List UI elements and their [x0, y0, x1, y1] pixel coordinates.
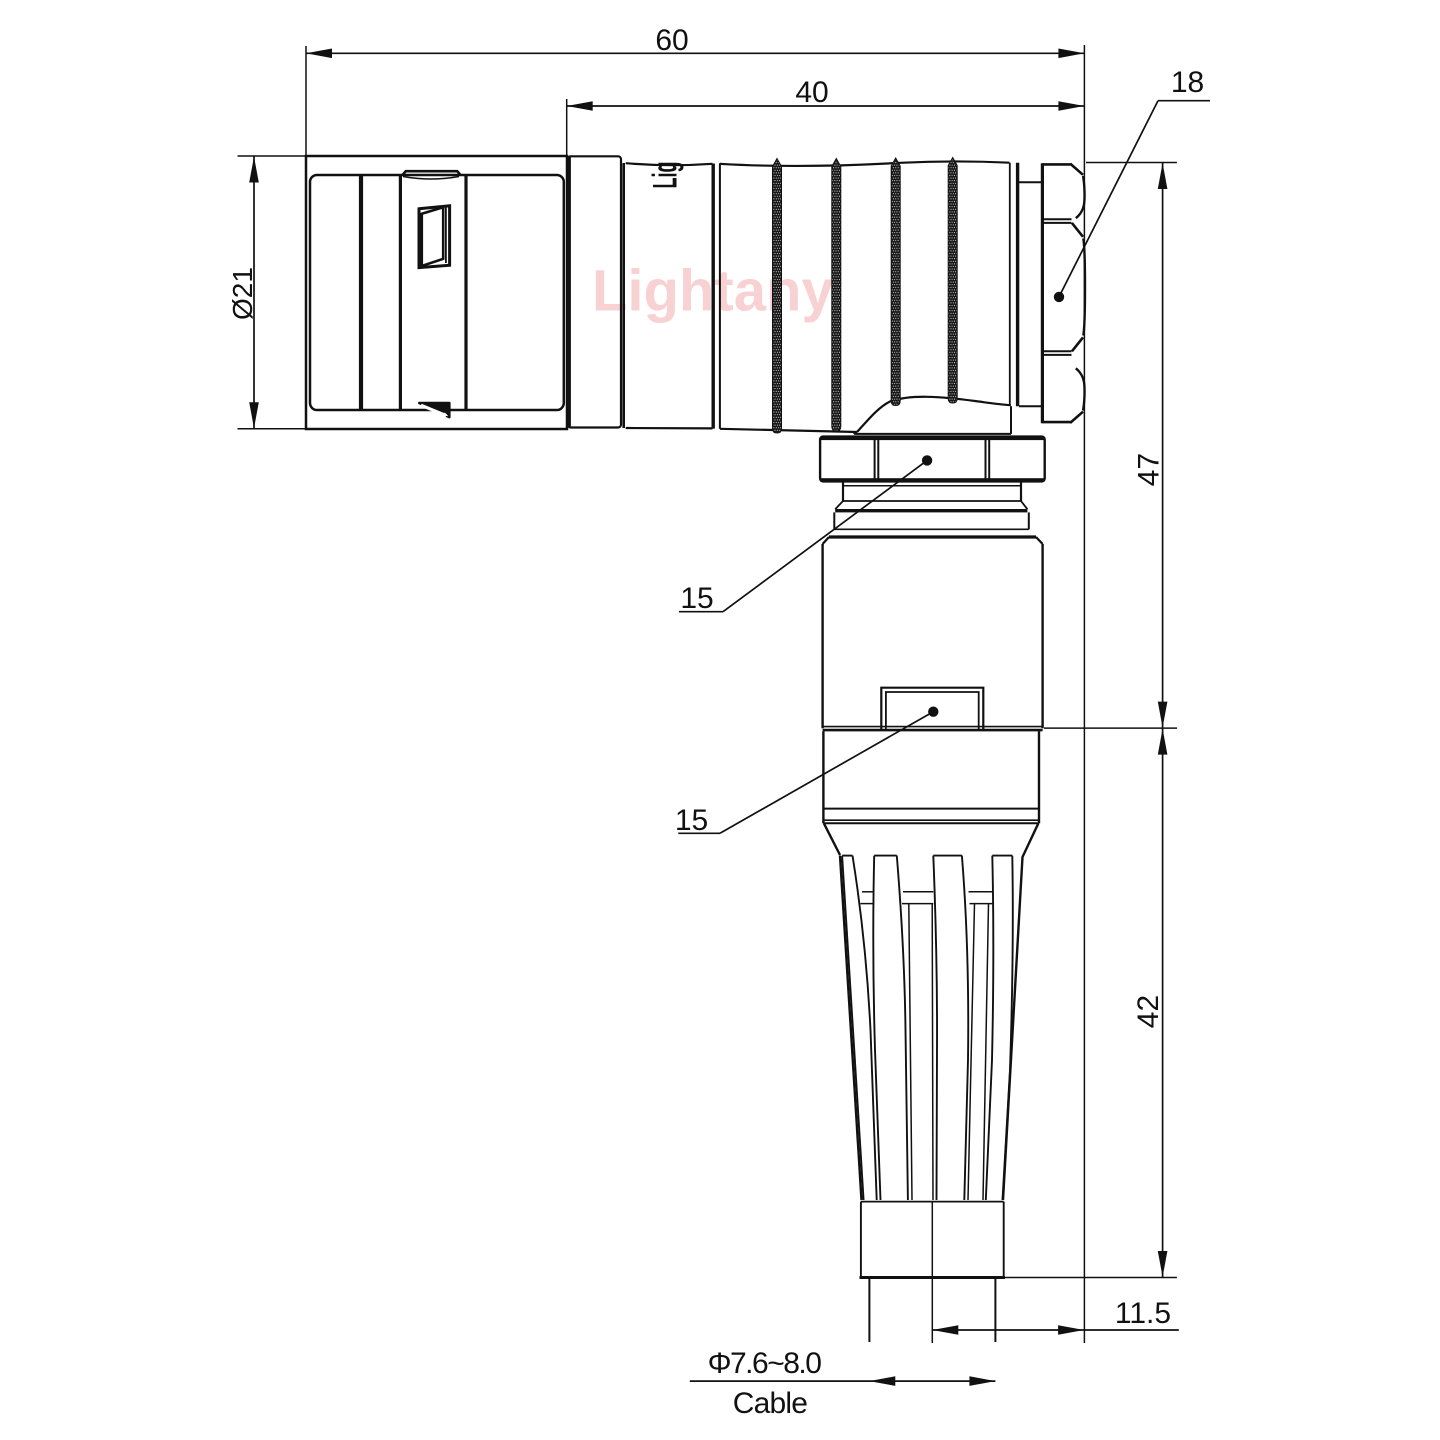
- svg-text:Φ7.6~8.0: Φ7.6~8.0: [708, 1347, 822, 1380]
- svg-text:15: 15: [680, 582, 713, 615]
- svg-text:Cable: Cable: [733, 1387, 807, 1420]
- svg-text:47: 47: [1133, 453, 1166, 486]
- svg-text:11.5: 11.5: [1115, 1297, 1171, 1330]
- svg-text:18: 18: [1171, 66, 1204, 99]
- svg-text:15: 15: [675, 804, 708, 837]
- svg-text:42: 42: [1132, 995, 1165, 1028]
- svg-text:Ø21: Ø21: [227, 267, 258, 320]
- svg-text:40: 40: [795, 76, 828, 109]
- svg-text:Lig: Lig: [645, 161, 684, 188]
- svg-text:60: 60: [655, 24, 688, 57]
